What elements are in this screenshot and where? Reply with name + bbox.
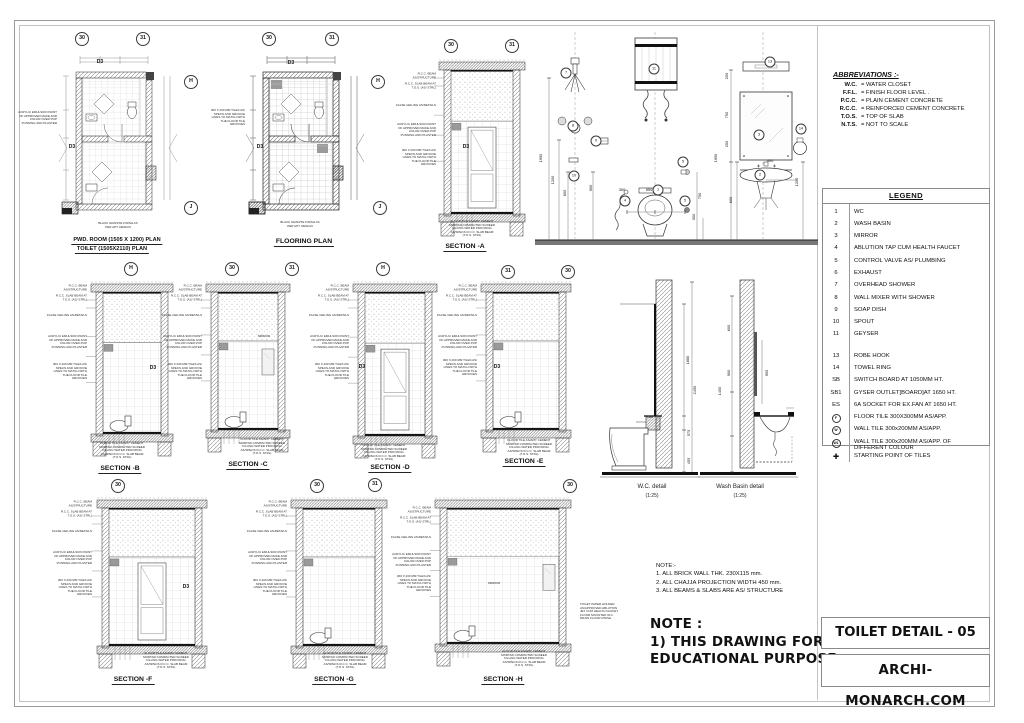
door-tag-d3: D3 bbox=[359, 364, 365, 370]
tile-start-symbol-glyph: ✚ bbox=[833, 453, 839, 460]
educational-note-line2: 1) THIS DRAWING FOR bbox=[650, 634, 837, 652]
legend-row: W1WALL TILE 300x200MM AS/APP. OF DIFFERE… bbox=[823, 437, 989, 452]
abbr-row: T.O.S.= TOP OF SLAB bbox=[833, 114, 985, 122]
legend-key: 10 bbox=[823, 319, 849, 325]
legend-key: 1 bbox=[823, 209, 849, 215]
legend-label: OVERHEAD SHOWER bbox=[849, 282, 989, 288]
annotation-rcc-slab: R.C.C. SLAB BEAM AT T.O.S. (AS/ STRL) bbox=[52, 510, 92, 517]
annotation-floor-stack: FLOOR TILE AS/APP. CEMENT MORTAR COMPACT… bbox=[361, 444, 407, 462]
legend-key: 5 bbox=[823, 258, 849, 264]
dim-300: 300 bbox=[619, 188, 626, 192]
legend-row: 8WALL MIXER WITH SHOWER bbox=[823, 293, 989, 305]
annotation-rcc-beam: R.C.C. BEAM AS/STRUCTURE bbox=[391, 506, 431, 513]
door-tag-d3: D3 bbox=[494, 364, 500, 370]
dim-300: 300 bbox=[692, 214, 696, 221]
grid-bubble-30: 30 bbox=[225, 262, 239, 276]
fixture-circle-control-valve: 5 bbox=[678, 157, 689, 168]
legend-row: 5CONTROL VALVE AS/ PLUMBING bbox=[823, 256, 989, 268]
grid-bubble-30: 30 bbox=[310, 479, 324, 493]
legend-row: 3MIRROR bbox=[823, 232, 989, 244]
annotation-false-ceiling: FALSE CEILING AS/DETAILS bbox=[396, 104, 436, 108]
wall-tile-2-symbol-glyph: W1 bbox=[832, 439, 841, 448]
legend-key: 6 bbox=[823, 270, 849, 276]
annotation-rcc-beam: R.C.C. BEAM AS/STRUCTURE bbox=[309, 284, 349, 291]
legend-rows: 1WC 2WASH BASIN 3MIRROR 4ABLUTION TAP CU… bbox=[823, 204, 989, 464]
annotation-paint: ACRYLIC EMULSION PAINT OF APPROVED MAKE … bbox=[309, 335, 349, 349]
annotation-floor-stack: FLOOR TILE AS/APP. CEMENT MORTAR COMPACT… bbox=[239, 438, 285, 456]
caption-basin-scale: (1:25) bbox=[733, 493, 746, 499]
drawing-elevation-fixtures bbox=[535, 22, 818, 255]
abbr-term: N.T.S. bbox=[833, 122, 857, 130]
annotation-paint: ACRYLIC EMULSION PAINT OF APPROVED MAKE … bbox=[396, 123, 436, 137]
fixture-circle-robe-hook: 13 bbox=[765, 57, 776, 68]
dim-2450: 2450 bbox=[693, 386, 697, 395]
annotation-mirror: MIRROR bbox=[488, 582, 530, 586]
grid-bubble-31: 31 bbox=[501, 265, 515, 279]
dim-150: 150 bbox=[647, 415, 654, 419]
fixture-circle-geyser: 11 bbox=[649, 64, 660, 75]
abbr-term: W.C. bbox=[833, 82, 857, 90]
annotation-wall-tile: 300 X 200 MM TILES AS/ SPECS AND GROOVE … bbox=[52, 579, 92, 597]
annotation-rcc-beam: R.C.C. BEAM AS/STRUCTURE bbox=[52, 500, 92, 507]
caption-section-d: SECTION -D bbox=[368, 464, 411, 473]
annotation-floor-stack: FLOOR TILE AS/APP. CEMENT MORTAR COMPACT… bbox=[99, 442, 145, 460]
door-tag-d3: D3 bbox=[150, 365, 156, 371]
general-note-3: 3. ALL BEAMS & SLABS ARE AS/ STRUCTURE bbox=[656, 587, 783, 595]
caption-toilet-plan: TOILET (1505X2110) PLAN bbox=[75, 246, 149, 254]
fixture-circle-control-valve: 5 bbox=[680, 196, 691, 207]
legend-label: ABLUTION TAP CUM HEALTH FAUCET bbox=[849, 245, 989, 251]
legend-row: WWALL TILE 300x200MM AS/APP. bbox=[823, 425, 989, 437]
general-note-1: 1. ALL BRICK WALL THK. 230X115 mm. bbox=[656, 570, 783, 578]
caption-section-e: SECTION -E bbox=[503, 458, 546, 467]
annotation-wall-tile: 300 X 200 MM TILES AS/ SPECS AND GROOVE … bbox=[309, 363, 349, 381]
abbr-row: N.T.S.= NOT TO SCALE bbox=[833, 122, 985, 130]
legend-label: TOWEL RING bbox=[849, 365, 989, 371]
tile-start-symbol: ✚ bbox=[823, 453, 849, 461]
legend-key: 3 bbox=[823, 233, 849, 239]
abbr-definition: = TOP OF SLAB bbox=[857, 114, 985, 122]
door-tag-d3: D3 bbox=[288, 60, 294, 66]
fixture-circle-wall-mixer: 8 bbox=[568, 121, 579, 132]
annotation-rcc-beam: R.C.C. BEAM AS/STRUCTURE bbox=[162, 284, 202, 291]
annotation-false-ceiling: FALSE CEILING AS/DETAILS bbox=[162, 314, 202, 318]
legend-label: FLOOR TILE 300X300MM AS/APP. bbox=[849, 414, 989, 420]
grid-bubble-h: H bbox=[184, 75, 198, 89]
dim-1950: 1950 bbox=[714, 154, 718, 163]
abbr-term: F.F.L. bbox=[833, 90, 857, 98]
annotation-rcc-slab: R.C.C. SLAB BEAM AT T.O.S. (AS/ STRL) bbox=[396, 82, 436, 89]
annotation-wall-tile: 300 X 200 MM TILES AS/ SPECS AND GROOVE … bbox=[47, 363, 87, 381]
caption-section-h: SECTION -H bbox=[481, 676, 524, 685]
grid-bubble-30: 30 bbox=[262, 32, 276, 46]
legend-block: LEGEND 1WC 2WASH BASIN 3MIRROR 4ABLUTION… bbox=[822, 188, 990, 446]
grid-bubble-j: J bbox=[373, 201, 387, 215]
legend-row: 7OVERHEAD SHOWER bbox=[823, 281, 989, 293]
abbr-definition: = REINFORCED CEMENT CONCRETE bbox=[857, 106, 985, 114]
drawing-section-d bbox=[348, 278, 442, 469]
general-notes-heading: NOTE:- bbox=[656, 562, 783, 570]
door-tag-d3: D3 bbox=[97, 59, 103, 65]
annotation-wall-tile: 300 X 200 MM TILES AS/ SPECS AND GROOVE … bbox=[162, 363, 202, 381]
general-notes: NOTE:- 1. ALL BRICK WALL THK. 230X115 mm… bbox=[656, 562, 783, 596]
legend-row: 2WASH BASIN bbox=[823, 219, 989, 231]
legend-gap bbox=[823, 342, 989, 351]
legend-label: WC bbox=[849, 209, 989, 215]
annotation-wall-tile: 300 X 200 MM TILES AS/ SPECS AND GROOVE … bbox=[437, 359, 477, 377]
annotation-false-ceiling: FALSE CEILING AS/DETAILS bbox=[437, 314, 477, 318]
abbr-definition: = NOT TO SCALE bbox=[857, 122, 985, 130]
annotation-floor-stack: FLOOR TILE AS/APP. CEMENT MORTAR COMPACT… bbox=[143, 652, 189, 670]
door-tag-d3: D3 bbox=[69, 144, 75, 150]
dim-600: 600 bbox=[729, 197, 733, 204]
annotation-wall-tile: 300 X 200 MM TILES AS/ SPECS AND GROOVE … bbox=[396, 149, 436, 167]
fixture-circle-soap-dish: 9 bbox=[591, 136, 602, 147]
dim-950: 950 bbox=[765, 370, 769, 377]
legend-key-divider bbox=[849, 204, 850, 462]
annotation-wc-stack: TOILET PAPER HOLDER AS/APPROVED ABLUTION… bbox=[580, 603, 622, 621]
legend-row: ES6A SOCKET FOR EX.FAN AT 1650 HT. bbox=[823, 400, 989, 412]
floor-tile-symbol: F bbox=[823, 414, 849, 423]
legend-row: ✚STARTING POINT OF TILES bbox=[823, 452, 989, 464]
educational-note: NOTE : 1) THIS DRAWING FOR EDUCATIONAL P… bbox=[650, 616, 837, 669]
door-tag-d3: D3 bbox=[463, 144, 469, 150]
dim-575: 575 bbox=[687, 430, 691, 437]
legend-label: STARTING POINT OF TILES bbox=[849, 453, 989, 459]
legend-label: WALL TILE 300x200MM AS/APP. OF DIFFERENT… bbox=[849, 439, 975, 452]
annotation-rcc-beam: R.C.C. BEAM AS/STRUCTURE bbox=[47, 284, 87, 291]
annotation-wall-tile: 300 X 200 MM TILES AS/ SPECS AND GROOVE … bbox=[247, 579, 287, 597]
annotation-paint: ACRYLIC EMULSION PAINT OF APPROVED MAKE … bbox=[17, 111, 57, 125]
annotation-rcc-beam: R.C.C. BEAM AS/STRUCTURE bbox=[396, 72, 436, 79]
grid-bubble-h: H bbox=[376, 262, 390, 276]
grid-bubble-30: 30 bbox=[444, 39, 458, 53]
legend-key: 7 bbox=[823, 282, 849, 288]
grid-bubble-31: 31 bbox=[368, 478, 382, 492]
abbreviations-block: ABBREVIATIONS :- W.C.= WATER CLOSET F.F.… bbox=[833, 70, 985, 130]
annotation-granite: BLACK GRANITE FINISH AS PER APT. DESIGN bbox=[277, 221, 323, 228]
caption-section-c: SECTION -C bbox=[226, 461, 269, 470]
fixture-circle-spout: 10 bbox=[569, 171, 580, 182]
abbr-definition: = WATER CLOSET bbox=[857, 82, 985, 90]
annotation-false-ceiling: FALSE CEILING AS/DETAILS bbox=[391, 536, 431, 540]
grid-bubble-30: 30 bbox=[75, 32, 89, 46]
annotation-floor-stack: FLOOR TILE AS/APP. CEMENT MORTAR COMPACT… bbox=[506, 439, 552, 457]
annotation-rcc-slab: R.C.C. SLAB BEAM AT T.O.S. (AS/ STRL) bbox=[162, 294, 202, 301]
legend-key: 4 bbox=[823, 245, 849, 251]
grid-bubble-30: 30 bbox=[111, 479, 125, 493]
legend-key: 9 bbox=[823, 307, 849, 313]
legend-row: SBSWITCH BOARD AT 1050MM HT. bbox=[823, 376, 989, 388]
legend-label: WASH BASIN bbox=[849, 221, 989, 227]
dim-1200: 1200 bbox=[551, 176, 555, 185]
fixture-circle-wc: 1 bbox=[653, 185, 664, 196]
grid-bubble-31: 31 bbox=[505, 39, 519, 53]
legend-label: CONTROL VALVE AS/ PLUMBING bbox=[849, 258, 989, 264]
legend-label: ROBE HOOK bbox=[849, 353, 989, 359]
fixture-circle-wash-basin: 2 bbox=[755, 170, 766, 181]
annotation-rcc-slab: R.C.C. SLAB BEAM AT T.O.S. (AS/ STRL) bbox=[247, 510, 287, 517]
abbr-term: T.O.S. bbox=[833, 114, 857, 122]
legend-row: 10SPOUT bbox=[823, 318, 989, 330]
sheet-title: TOILET DETAIL - 05 bbox=[821, 617, 990, 649]
legend-label: GYSER OUTLET[BOARD]AT 1650 HT. bbox=[849, 390, 989, 396]
dim-600: 600 bbox=[727, 325, 731, 332]
dim-400: 400 bbox=[767, 159, 774, 163]
legend-row: SB1GYSER OUTLET[BOARD]AT 1650 HT. bbox=[823, 388, 989, 400]
annotation-paint: ACRYLIC EMULSION PAINT OF APPROVED MAKE … bbox=[47, 335, 87, 349]
legend-row: 1WC bbox=[823, 207, 989, 219]
legend-label: SPOUT bbox=[849, 319, 989, 325]
abbr-definition: = FINISH FLOOR LEVEL . bbox=[857, 90, 985, 98]
legend-label: GEYSER bbox=[849, 331, 989, 337]
dim-1950: 1950 bbox=[539, 154, 543, 163]
annotation-paint: ACRYLIC EMULSION PAINT OF APPROVED MAKE … bbox=[162, 335, 202, 349]
dim-900: 900 bbox=[589, 185, 593, 192]
caption-section-b: SECTION -B bbox=[98, 465, 141, 474]
legend-row: 4ABLUTION TAP CUM HEALTH FAUCET bbox=[823, 244, 989, 256]
abbr-term: R.C.C. bbox=[833, 106, 857, 114]
annotation-floor-stack: FLOOR TILE AS/APP. CEMENT MORTAR COMPACT… bbox=[501, 650, 547, 668]
legend-label: MIRROR bbox=[849, 233, 989, 239]
annotation-rcc-slab: R.C.C. SLAB BEAM AT T.O.S. (AS/ STRL) bbox=[309, 294, 349, 301]
grid-bubble-30: 30 bbox=[561, 265, 575, 279]
legend-key: 2 bbox=[823, 221, 849, 227]
fixture-circle-ablution-tap: 4 bbox=[620, 196, 631, 207]
drawing-wc-detail bbox=[600, 276, 700, 486]
caption-section-a: SECTION -A bbox=[443, 243, 486, 252]
annotation-paint: ACRYLIC EMULSION PAINT OF APPROVED MAKE … bbox=[437, 335, 477, 349]
annotation-floor-stack: FLOOR TILE AS/APP. CEMENT MORTAR COMPACT… bbox=[322, 652, 368, 670]
abbr-row: P.C.C.= PLAIN CEMENT CONCRETE bbox=[833, 98, 985, 106]
caption-pwd-room-plan: PWD. ROOM (1505 X 1200) PLAN bbox=[71, 237, 162, 245]
abbr-definition: = PLAIN CEMENT CONCRETE bbox=[857, 98, 985, 106]
dim-455: 455 bbox=[687, 458, 691, 465]
legend-row: 14TOWEL RING bbox=[823, 363, 989, 375]
legend-row: 11GEYSER bbox=[823, 330, 989, 342]
website-name: ARCHI-MONARCH.COM bbox=[821, 654, 990, 687]
general-note-2: 2. ALL CHAJJA PROJECTION WIDTH 450 mm. bbox=[656, 579, 783, 587]
dim-200: 200 bbox=[725, 141, 729, 148]
grid-bubble-j: J bbox=[184, 201, 198, 215]
door-tag-d3: D3 bbox=[183, 584, 189, 590]
grid-bubble-31: 31 bbox=[325, 32, 339, 46]
annotation-rcc-slab: R.C.C. SLAB BEAM AT T.O.S. (AS/ STRL) bbox=[437, 294, 477, 301]
annotation-rcc-slab: R.C.C. SLAB BEAM AT T.O.S. (AS/ STRL) bbox=[47, 294, 87, 301]
caption-flooring-plan: FLOORING PLAN bbox=[274, 238, 334, 247]
annotation-rcc-slab: R.C.C. SLAB BEAM AT T.O.S. (AS/ STRL) bbox=[391, 516, 431, 523]
annotation-granite: BLACK GRANITE FINISH AS PER APT. DESIGN bbox=[95, 222, 141, 229]
annotation-false-ceiling: FALSE CEILING AS/DETAILS bbox=[52, 530, 92, 534]
caption-section-g: SECTION -G bbox=[312, 676, 356, 685]
legend-heading: LEGEND bbox=[823, 189, 989, 204]
annotation-false-ceiling: FALSE CEILING AS/DETAILS bbox=[309, 314, 349, 318]
dim-550: 550 bbox=[646, 188, 653, 192]
grid-bubble-h: H bbox=[371, 75, 385, 89]
abbr-row: F.F.L.= FINISH FLOOR LEVEL . bbox=[833, 90, 985, 98]
annotation-wall-tile: 300 X 200 MM TILES AS/ SPECS AND GROOVE … bbox=[391, 575, 431, 593]
dim-1680: 1680 bbox=[686, 356, 690, 365]
annotation-false-ceiling: FALSE CEILING AS/DETAILS bbox=[47, 314, 87, 318]
drawing-basin-detail bbox=[698, 276, 798, 486]
legend-key: SB1 bbox=[823, 390, 849, 396]
legend-label: WALL TILE 300x200MM AS/APP. bbox=[849, 426, 989, 432]
drawing-section-e bbox=[476, 278, 576, 463]
grid-bubble-h: H bbox=[124, 262, 138, 276]
fixture-circle-mirror: 3 bbox=[754, 130, 765, 141]
dim-200: 200 bbox=[725, 73, 729, 80]
annotation-mirror: MIRROR bbox=[258, 335, 300, 339]
drawing-section-c bbox=[201, 278, 295, 463]
legend-key: 14 bbox=[823, 365, 849, 371]
legend-key: 11 bbox=[823, 331, 849, 337]
fixture-circle-towel-ring: 14 bbox=[796, 124, 807, 135]
dim-900: 900 bbox=[727, 370, 731, 377]
floor-tile-symbol-glyph: F bbox=[832, 414, 841, 423]
dim-1400: 1400 bbox=[718, 387, 722, 396]
grid-bubble-31: 31 bbox=[136, 32, 150, 46]
dim-750: 750 bbox=[725, 112, 729, 119]
educational-note-line3: EDUCATIONAL PURPOSE bbox=[650, 651, 837, 669]
legend-key: ES bbox=[823, 402, 849, 408]
grid-bubble-30: 30 bbox=[563, 479, 577, 493]
annotation-floor-stack: FLOOR TILE AS/APP. CEMENT MORTAR COMPACT… bbox=[449, 220, 495, 238]
wall-tile-2-symbol: W1 bbox=[823, 439, 849, 448]
caption-basin-detail: Wash Basin detail bbox=[716, 484, 764, 490]
caption-section-f: SECTION -F bbox=[112, 676, 155, 685]
annotation-paint: ACRYLIC EMULSION PAINT OF APPROVED MAKE … bbox=[247, 551, 287, 565]
door-tag-d3: D3 bbox=[257, 144, 263, 150]
legend-label: 6A SOCKET FOR EX.FAN AT 1650 HT. bbox=[849, 402, 989, 408]
legend-row: FFLOOR TILE 300X300MM AS/APP. bbox=[823, 413, 989, 425]
legend-label: SWITCH BOARD AT 1050MM HT. bbox=[849, 377, 989, 383]
legend-key: 13 bbox=[823, 353, 849, 359]
wall-tile-symbol-glyph: W bbox=[832, 426, 841, 435]
educational-note-line1: NOTE : bbox=[650, 616, 837, 634]
abbreviations-heading: ABBREVIATIONS :- bbox=[833, 70, 985, 79]
caption-wc-detail: W.C. detail bbox=[637, 484, 666, 490]
annotation-wall-tile: 300 X 200 MM TILES AS/ SPECS AND GROOVE … bbox=[205, 109, 245, 127]
legend-key: SB bbox=[823, 377, 849, 383]
grid-bubble-31: 31 bbox=[285, 262, 299, 276]
legend-key: 8 bbox=[823, 295, 849, 301]
legend-row: 13ROBE HOOK bbox=[823, 351, 989, 363]
annotation-false-ceiling: FALSE CEILING AS/DETAILS bbox=[247, 530, 287, 534]
dim-1200: 1200 bbox=[795, 178, 799, 187]
abbr-row: R.C.C.= REINFORCED CEMENT CONCRETE bbox=[833, 106, 985, 114]
annotation-rcc-beam: R.C.C. BEAM AS/STRUCTURE bbox=[437, 284, 477, 291]
legend-label: EXHAUST bbox=[849, 270, 989, 276]
caption-wc-scale: (1:25) bbox=[645, 493, 658, 499]
fixture-circle-overhead-shower: 7 bbox=[561, 68, 572, 79]
drawing-plan-pwd-toilet bbox=[58, 50, 178, 241]
legend-row: 6EXHAUST bbox=[823, 268, 989, 280]
annotation-paint: ACRYLIC EMULSION PAINT OF APPROVED MAKE … bbox=[52, 551, 92, 565]
annotation-rcc-beam: R.C.C. BEAM AS/STRUCTURE bbox=[247, 500, 287, 507]
dim-800: 800 bbox=[563, 190, 567, 197]
annotation-paint: ACRYLIC EMULSION PAINT OF APPROVED MAKE … bbox=[391, 553, 431, 567]
abbr-term: P.C.C. bbox=[833, 98, 857, 106]
abbr-row: W.C.= WATER CLOSET bbox=[833, 82, 985, 90]
legend-label: WALL MIXER WITH SHOWER bbox=[849, 295, 989, 301]
legend-row: 9SOAP DISH bbox=[823, 305, 989, 317]
drawing-sheet: 3031HJ3031HJ3031H3031H313030303130D3D3D3… bbox=[0, 0, 1024, 723]
wall-tile-symbol: W bbox=[823, 426, 849, 435]
dim-750: 750 bbox=[698, 193, 702, 200]
legend-label: SOAP DISH bbox=[849, 307, 989, 313]
